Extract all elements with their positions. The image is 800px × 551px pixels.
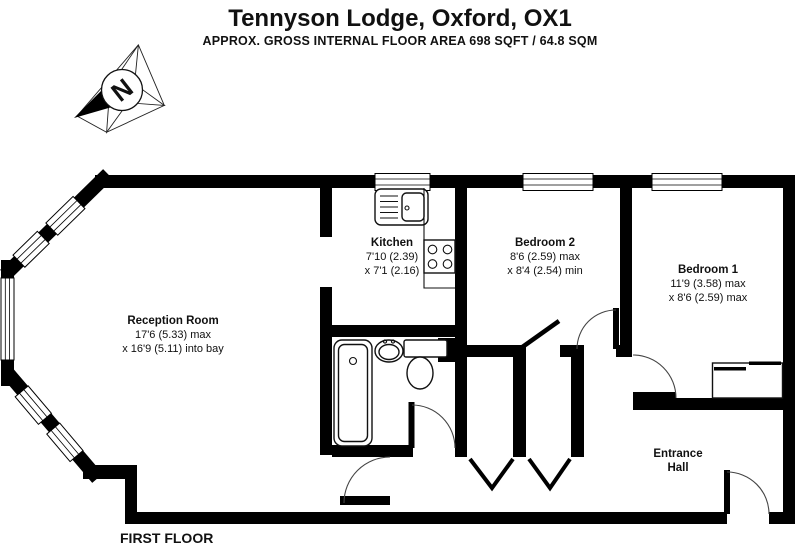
bay-window-lower-1 bbox=[15, 386, 51, 424]
wall-bedroom1-bedroom2 bbox=[620, 188, 632, 357]
outer-wall-right bbox=[783, 175, 795, 524]
reception-name: Reception Room bbox=[127, 315, 218, 327]
bay-window-left bbox=[1, 278, 14, 360]
kitchen-dims-1: 7'10 (2.39) bbox=[366, 251, 418, 263]
bay-window-upper-1 bbox=[46, 196, 85, 235]
room-label-bedroom2: Bedroom 2 8'6 (2.59) max x 8'4 (2.54) mi… bbox=[507, 237, 582, 277]
hall-name-2: Hall bbox=[667, 462, 688, 474]
wall-bedroom2-bottom-left bbox=[455, 345, 518, 357]
outer-wall-bottom-left-of-door bbox=[127, 512, 727, 524]
wall-reception-kitchen-upper bbox=[320, 188, 332, 237]
door-reception-hall bbox=[340, 457, 390, 505]
reception-dims-1: 17'6 (5.33) max bbox=[135, 329, 212, 341]
door-closet-bifold-1 bbox=[470, 459, 513, 488]
wall-bedroom1-hall bbox=[633, 398, 783, 410]
bedroom2-name: Bedroom 2 bbox=[515, 237, 575, 249]
wall-kitchen-bedroom2 bbox=[455, 188, 467, 457]
door-closet-bedroom2 bbox=[521, 321, 559, 348]
step-wall bbox=[125, 465, 137, 524]
wall-closet-2 bbox=[571, 345, 584, 457]
wall-closet-1 bbox=[513, 345, 526, 457]
window-kitchen bbox=[375, 174, 430, 191]
outer-wall-bottom-right-of-door bbox=[769, 512, 795, 524]
room-label-kitchen: Kitchen 7'10 (2.39) x 7'1 (2.16) bbox=[365, 237, 420, 277]
door-closet-bifold-2 bbox=[529, 459, 570, 488]
reception-dims-2: x 16'9 (5.11) into bay bbox=[122, 343, 224, 355]
window-bedroom2 bbox=[523, 174, 593, 191]
bedroom1-name: Bedroom 1 bbox=[678, 264, 739, 276]
bedroom2-dims-2: x 8'4 (2.54) min bbox=[507, 265, 582, 277]
wardrobe bbox=[713, 362, 783, 399]
bedroom2-dims-1: 8'6 (2.59) max bbox=[510, 251, 580, 263]
room-label-bedroom1: Bedroom 1 11'9 (3.58) max x 8'6 (2.59) m… bbox=[669, 264, 748, 304]
bay-window-lower-2 bbox=[47, 423, 83, 461]
floorplan-drawing: Tennyson Lodge, Oxford, OX1 APPROX. GROS… bbox=[0, 0, 800, 551]
page-title: Tennyson Lodge, Oxford, OX1 bbox=[228, 5, 572, 32]
toilet bbox=[404, 340, 447, 389]
wall-reception-kitchen-lower bbox=[320, 287, 332, 455]
room-label-reception: Reception Room 17'6 (5.33) max x 16'9 (5… bbox=[122, 315, 224, 355]
floorplan-page: Tennyson Lodge, Oxford, OX1 APPROX. GROS… bbox=[0, 0, 800, 551]
compass-north-icon: N bbox=[74, 45, 164, 132]
kitchen-sink bbox=[375, 189, 428, 225]
bathtub bbox=[334, 340, 372, 446]
door-bedroom1 bbox=[633, 355, 676, 399]
wall-kitchen-bathroom bbox=[332, 325, 455, 337]
door-bathroom bbox=[409, 402, 456, 448]
bedroom1-dims-2: x 8'6 (2.59) max bbox=[669, 292, 748, 304]
wash-basin bbox=[375, 340, 403, 362]
hall-name-1: Entrance bbox=[653, 448, 702, 460]
wall-bathroom-bottom bbox=[332, 445, 413, 457]
window-bedroom1 bbox=[652, 174, 722, 191]
bedroom1-dims-1: 11'9 (3.58) max bbox=[670, 278, 746, 290]
door-bedroom2 bbox=[577, 308, 619, 349]
kitchen-dims-2: x 7'1 (2.16) bbox=[365, 265, 420, 277]
room-label-entrance-hall: Entrance Hall bbox=[653, 448, 702, 474]
floor-label: FIRST FLOOR bbox=[120, 530, 213, 546]
door-entrance bbox=[724, 470, 769, 514]
page-subtitle: APPROX. GROSS INTERNAL FLOOR AREA 698 SQ… bbox=[203, 34, 598, 48]
hob bbox=[424, 240, 455, 273]
kitchen-name: Kitchen bbox=[371, 237, 413, 249]
